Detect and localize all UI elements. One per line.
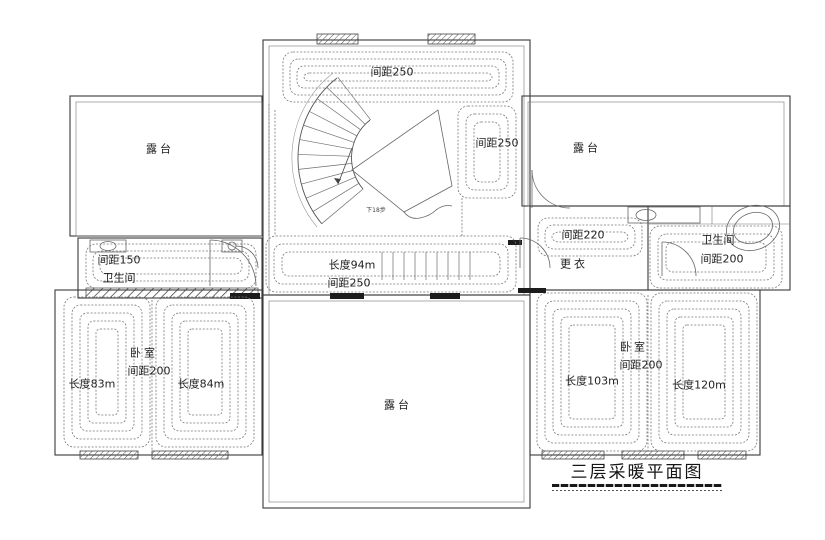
title-underline-thick (552, 484, 722, 487)
title-underline-thin (552, 490, 722, 491)
label-bedroom-right-coil1: 长度103m (565, 376, 619, 387)
bathroom-fixtures (90, 198, 786, 258)
floor-plan-canvas: 间距250 间距250 露台 露台 间距150 卫生间 长度94m 间距250 … (0, 0, 825, 540)
label-terrace-right: 露台 (573, 143, 601, 154)
label-bedroom-left-name: 卧室 (130, 348, 158, 359)
label-bath-left-name: 卫生间 (103, 273, 136, 284)
corridor-serpentine (382, 252, 470, 280)
label-terrace-bottom: 露台 (384, 400, 412, 411)
label-hall-right-spacing: 间距250 (476, 138, 519, 149)
doors (210, 170, 696, 286)
label-bath-right-name: 卫生间 (702, 235, 735, 246)
label-terrace-left: 露台 (146, 144, 174, 155)
label-bath-right-spacing: 间距200 (701, 254, 744, 265)
label-dressing-name: 更衣 (560, 259, 588, 270)
label-corridor-spacing: 间距250 (328, 278, 371, 289)
label-bedroom-right-name: 卧室 (620, 342, 648, 353)
label-bedroom-right-spacing: 间距200 (620, 360, 663, 371)
label-dressing-spacing: 间距220 (562, 230, 605, 241)
label-corridor-length: 长度94m (329, 260, 376, 271)
drawing-title: 三层采暖平面图 (571, 458, 704, 483)
label-bedroom-left-coil2: 长度84m (178, 379, 225, 390)
label-stair-note: 下18步 (366, 208, 386, 214)
wall-bars (230, 240, 546, 299)
label-bath-left-spacing: 间距150 (98, 255, 141, 266)
label-hall-top-spacing: 间距250 (371, 67, 414, 78)
label-bedroom-left-coil1: 长度83m (69, 379, 116, 390)
label-bedroom-right-coil2: 长度120m (672, 380, 726, 391)
label-bedroom-left-spacing: 间距200 (128, 366, 171, 377)
staircase (292, 73, 452, 227)
